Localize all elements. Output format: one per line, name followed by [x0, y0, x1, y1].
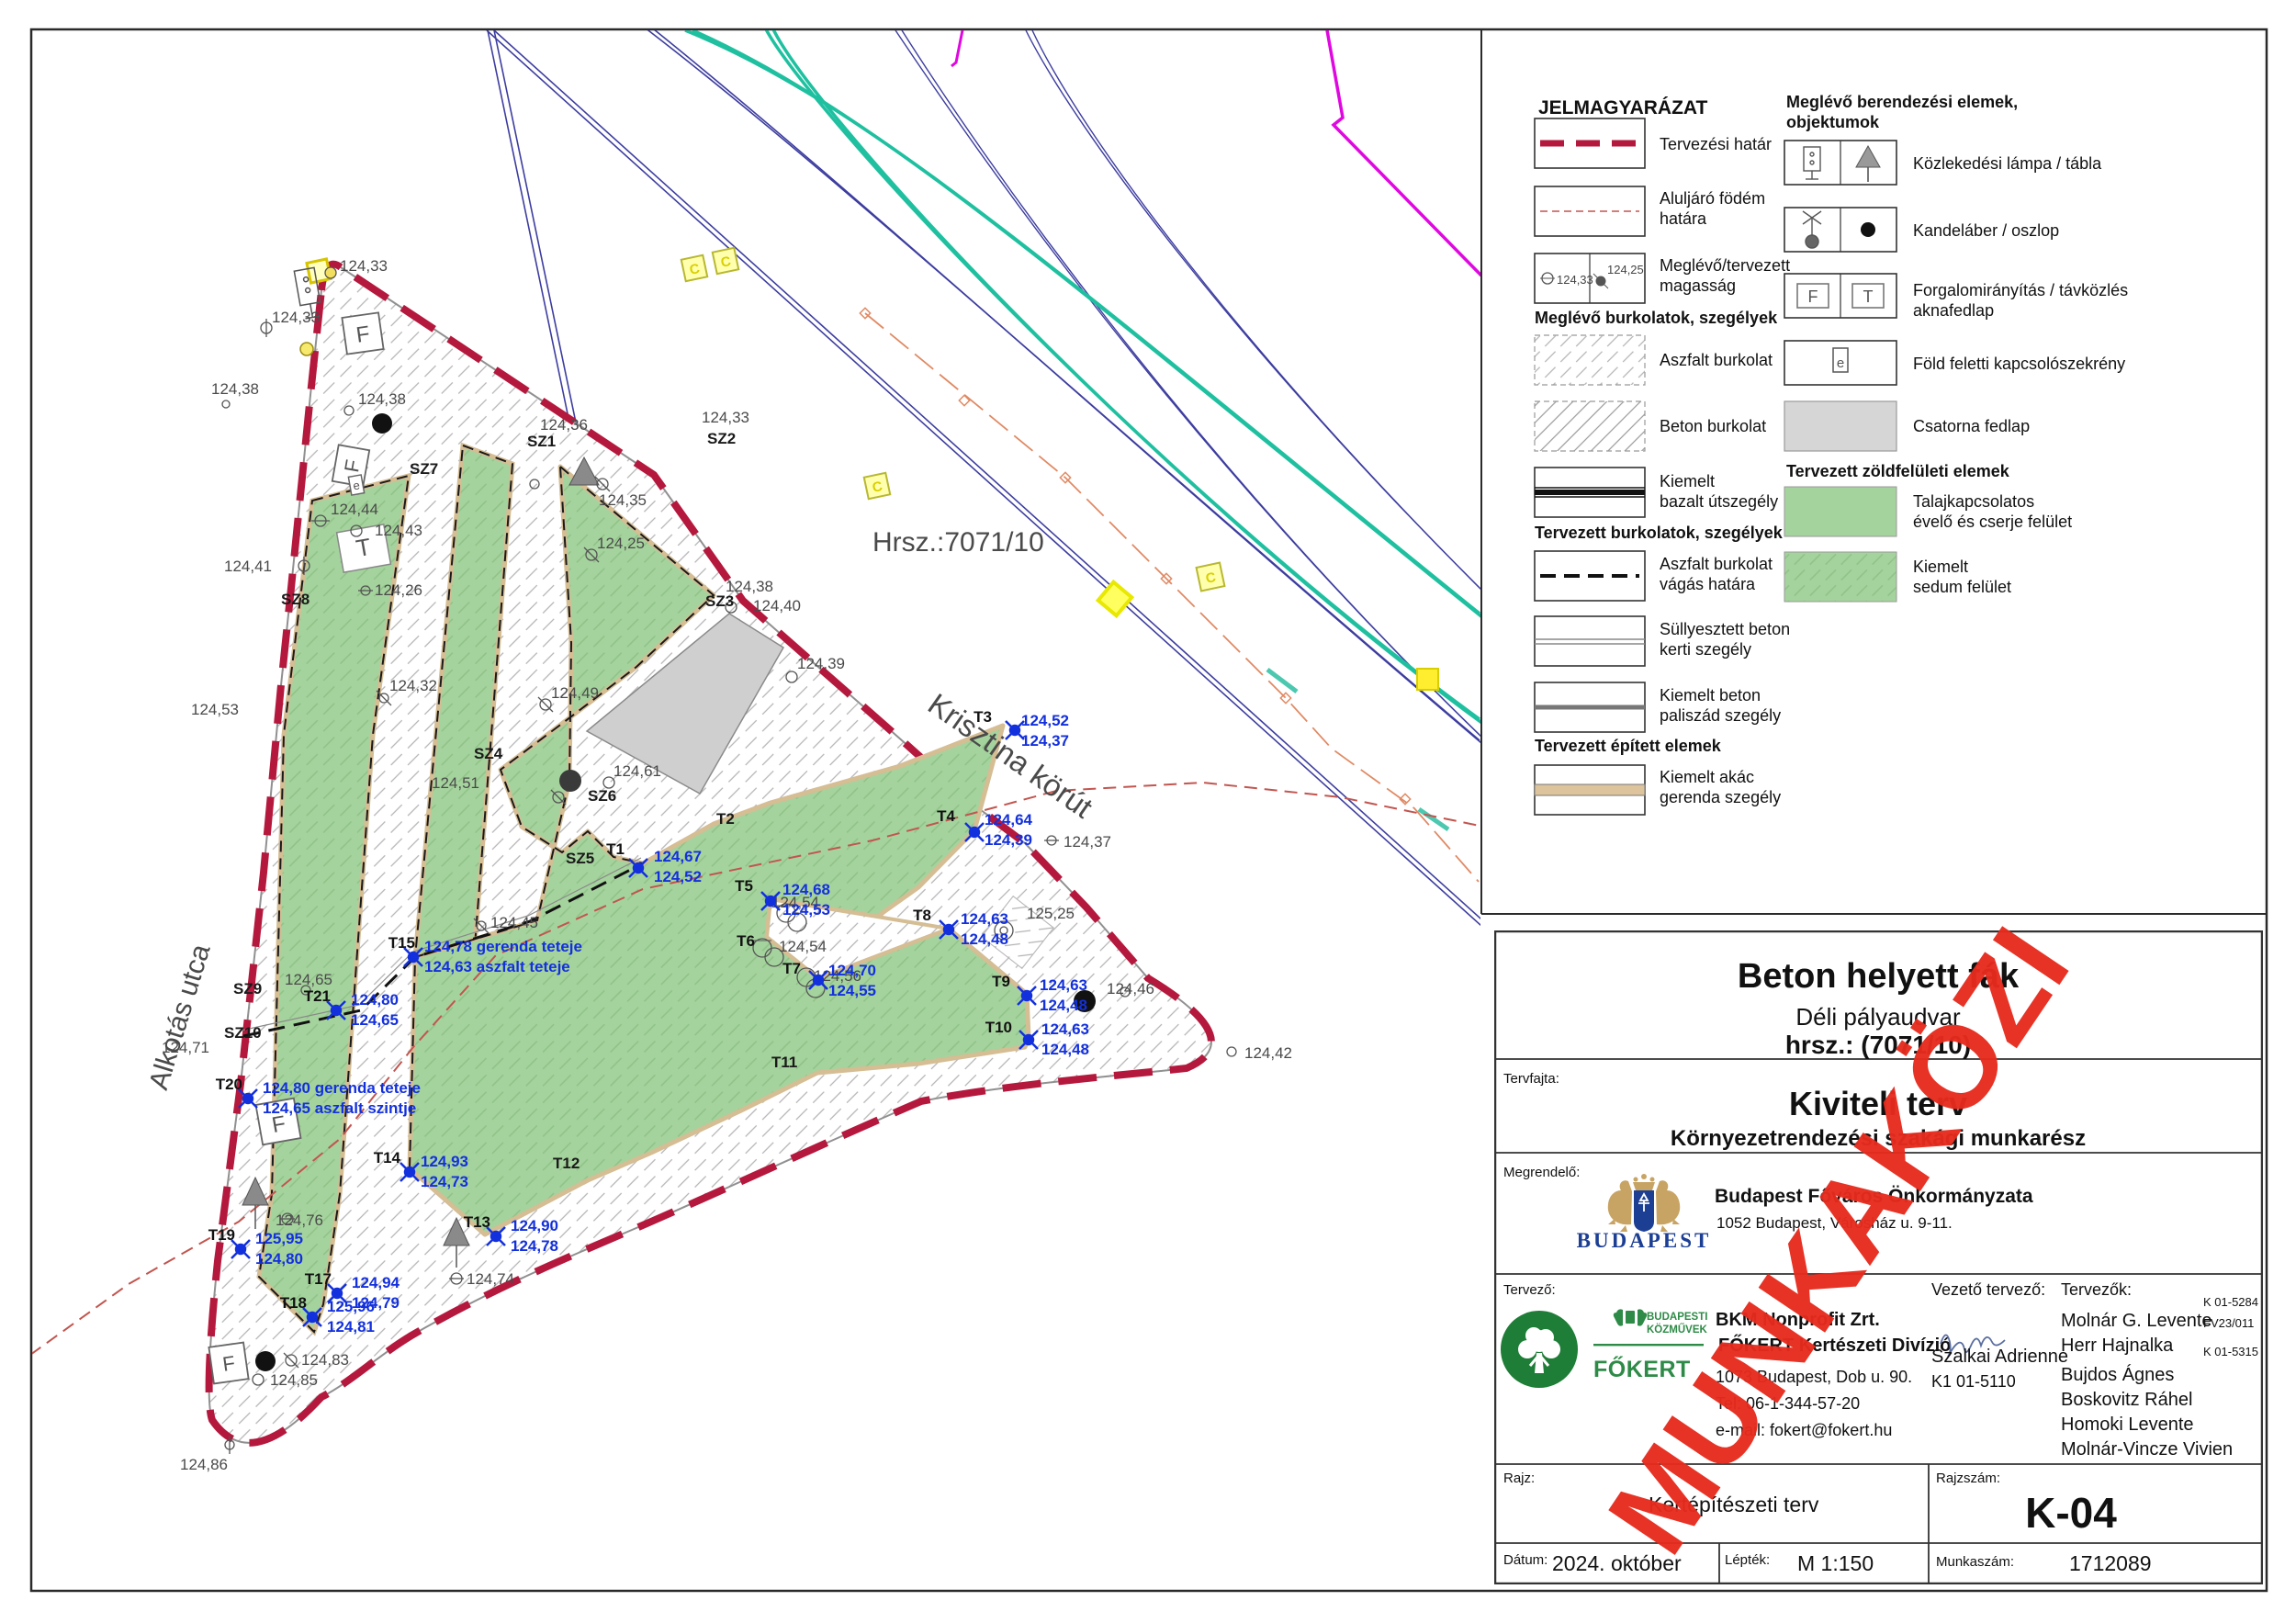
svg-text:125,25: 125,25: [1027, 905, 1075, 922]
svg-text:gerenda szegély: gerenda szegély: [1660, 788, 1781, 806]
svg-text:124,46: 124,46: [1107, 980, 1154, 997]
svg-text:Dátum:: Dátum:: [1503, 1552, 1548, 1568]
svg-text:124,33: 124,33: [272, 309, 320, 326]
svg-text:124,63: 124,63: [1040, 976, 1087, 994]
svg-text:124,35: 124,35: [599, 491, 647, 509]
svg-text:Aszfalt burkolat: Aszfalt burkolat: [1660, 555, 1773, 573]
svg-text:Aszfalt burkolat: Aszfalt burkolat: [1660, 351, 1773, 369]
svg-text:K 01-5284: K 01-5284: [2203, 1295, 2258, 1309]
svg-text:Lépték:: Lépték:: [1725, 1552, 1770, 1568]
svg-text:Meglévő burkolatok, szegélyek: Meglévő burkolatok, szegélyek: [1535, 309, 1778, 327]
svg-text:SZ3: SZ3: [705, 592, 734, 610]
svg-text:124,43: 124,43: [375, 522, 422, 539]
svg-text:124,85: 124,85: [270, 1371, 318, 1389]
svg-text:Bujdos Ágnes: Bujdos Ágnes: [2061, 1364, 2174, 1385]
svg-text:T14: T14: [374, 1149, 401, 1167]
svg-text:SZ8: SZ8: [281, 591, 310, 608]
svg-text:1073 Budapest, Dob u. 90.: 1073 Budapest, Dob u. 90.: [1716, 1368, 1912, 1386]
svg-text:BKM Nonprofit Zrt.: BKM Nonprofit Zrt.: [1716, 1310, 1880, 1330]
svg-text:SZ5: SZ5: [566, 850, 594, 867]
svg-text:Homoki Levente: Homoki Levente: [2061, 1414, 2194, 1435]
svg-text:K 01-5315: K 01-5315: [2203, 1345, 2258, 1358]
svg-text:124,67: 124,67: [654, 848, 702, 865]
svg-text:FŐKERT: FŐKERT: [1593, 1356, 1691, 1382]
svg-text:Kiemelt: Kiemelt: [1913, 558, 1968, 576]
svg-text:124,25: 124,25: [1607, 263, 1644, 276]
svg-text:124,52: 124,52: [1021, 712, 1069, 729]
svg-text:T8: T8: [913, 907, 931, 924]
svg-text:124,48: 124,48: [1041, 1041, 1089, 1058]
svg-text:T11: T11: [771, 1054, 797, 1071]
svg-text:Föld feletti kapcsolószekrény: Föld feletti kapcsolószekrény: [1913, 355, 2125, 373]
svg-text:Megrendelő:: Megrendelő:: [1503, 1165, 1580, 1180]
svg-text:T9: T9: [992, 973, 1010, 990]
svg-text:124,33: 124,33: [1557, 273, 1593, 287]
svg-text:határa: határa: [1660, 209, 1707, 228]
svg-text:Kertépítészeti terv: Kertépítészeti terv: [1649, 1493, 1819, 1516]
svg-text:124,38: 124,38: [211, 380, 259, 398]
svg-text:124,25: 124,25: [597, 535, 645, 552]
svg-text:125,96: 125,96: [327, 1298, 375, 1315]
svg-text:Környezetrendezési szakági mun: Környezetrendezési szakági munkarész: [1671, 1126, 2086, 1151]
svg-text:SZ9: SZ9: [233, 980, 262, 997]
svg-text:Tel: 06-1-344-57-20: Tel: 06-1-344-57-20: [1716, 1394, 1860, 1413]
svg-text:124,80 gerenda teteje: 124,80 gerenda teteje: [263, 1079, 421, 1097]
svg-text:Déli pályaudvar: Déli pályaudvar: [1795, 1003, 1961, 1031]
svg-text:124,65: 124,65: [351, 1011, 399, 1029]
svg-text:Meglévő/tervezett: Meglévő/tervezett: [1660, 256, 1790, 275]
svg-text:124,41: 124,41: [224, 558, 272, 575]
svg-text:objektumok: objektumok: [1786, 113, 1880, 131]
svg-text:T15: T15: [388, 934, 415, 952]
svg-text:e: e: [1837, 355, 1844, 371]
svg-text:124,76: 124,76: [276, 1212, 323, 1229]
svg-text:124,65 aszfalt szintje: 124,65 aszfalt szintje: [263, 1099, 416, 1117]
svg-text:124,94: 124,94: [352, 1274, 400, 1291]
svg-text:FŐKERT Kertészeti Divízió: FŐKERT Kertészeti Divízió: [1718, 1335, 1951, 1356]
svg-text:124,48: 124,48: [1040, 997, 1087, 1014]
svg-text:e-mail: fokert@fokert.hu: e-mail: fokert@fokert.hu: [1716, 1421, 1892, 1439]
svg-text:124,86: 124,86: [180, 1456, 228, 1473]
svg-text:Csatorna fedlap: Csatorna fedlap: [1913, 417, 2030, 435]
svg-text:2024. október: 2024. október: [1552, 1551, 1682, 1575]
svg-text:Közlekedési lámpa / tábla: Közlekedési lámpa / tábla: [1913, 154, 2102, 173]
svg-text:F: F: [1808, 287, 1818, 306]
svg-text:Budapest Főváros Önkormányzata: Budapest Főváros Önkormányzata: [1715, 1186, 2033, 1207]
svg-text:FV23/011: FV23/011: [2203, 1316, 2254, 1330]
svg-text:bazalt útszegély: bazalt útszegély: [1660, 492, 1778, 511]
svg-text:124,36: 124,36: [540, 416, 588, 434]
svg-text:124,26: 124,26: [375, 581, 422, 599]
svg-text:Kandeláber / oszlop: Kandeláber / oszlop: [1913, 221, 2059, 240]
svg-text:Rajz:: Rajz:: [1503, 1471, 1535, 1486]
svg-text:124,40: 124,40: [753, 597, 801, 614]
svg-text:aknafedlap: aknafedlap: [1913, 301, 1994, 320]
svg-text:1052 Budapest, Városház u. 9-1: 1052 Budapest, Városház u. 9-11.: [1716, 1214, 1953, 1232]
svg-text:T12: T12: [553, 1155, 580, 1172]
svg-text:SZ2: SZ2: [707, 430, 736, 447]
svg-text:Beton helyett fák: Beton helyett fák: [1738, 957, 2020, 996]
svg-text:Tervező:: Tervező:: [1503, 1282, 1556, 1298]
svg-text:T6: T6: [737, 932, 755, 950]
svg-text:124,45: 124,45: [490, 914, 538, 931]
svg-text:Aluljáró födém: Aluljáró födém: [1660, 189, 1765, 208]
svg-text:KÖZMŰVEK: KÖZMŰVEK: [1647, 1324, 1708, 1336]
svg-text:124,63: 124,63: [1041, 1020, 1089, 1038]
svg-text:124,93: 124,93: [421, 1153, 468, 1170]
svg-text:K-04: K-04: [2025, 1489, 2117, 1537]
svg-text:Rajzszám:: Rajzszám:: [1936, 1471, 2000, 1486]
svg-text:Munkaszám:: Munkaszám:: [1936, 1554, 2014, 1570]
svg-text:T5: T5: [735, 877, 753, 895]
svg-text:BUDAPESTI: BUDAPESTI: [1647, 1312, 1707, 1323]
svg-text:Beton burkolat: Beton burkolat: [1660, 417, 1766, 435]
svg-text:Tervezők:: Tervezők:: [2061, 1280, 2132, 1299]
svg-text:Vezető tervező:: Vezető tervező:: [1931, 1280, 2045, 1299]
svg-text:Tervezett zöldfelületi elemek: Tervezett zöldfelületi elemek: [1786, 462, 2010, 480]
svg-text:T2: T2: [716, 810, 735, 828]
svg-text:124,52: 124,52: [654, 868, 702, 885]
svg-text:124,53: 124,53: [782, 901, 830, 919]
svg-text:124,44: 124,44: [331, 501, 378, 518]
svg-text:Tervezési határ: Tervezési határ: [1660, 135, 1772, 153]
svg-text:hrsz.: (7071/10): hrsz.: (7071/10): [1785, 1031, 1971, 1059]
svg-text:T7: T7: [782, 960, 801, 977]
svg-text:124,63: 124,63: [961, 910, 1008, 928]
svg-text:124,78: 124,78: [511, 1237, 558, 1255]
svg-text:124,64: 124,64: [985, 811, 1033, 828]
svg-text:Molnár-Vincze Vivien: Molnár-Vincze Vivien: [2061, 1439, 2233, 1460]
svg-text:124,74: 124,74: [467, 1270, 514, 1288]
svg-text:Tervezett épített elemek: Tervezett épített elemek: [1535, 737, 1722, 755]
svg-text:125,95: 125,95: [255, 1230, 303, 1247]
svg-text:124,39: 124,39: [985, 831, 1032, 849]
svg-text:124,90: 124,90: [511, 1217, 558, 1234]
svg-text:Boskovitz Ráhel: Boskovitz Ráhel: [2061, 1390, 2192, 1410]
svg-text:124,78 gerenda teteje: 124,78 gerenda teteje: [424, 938, 582, 955]
svg-text:T1: T1: [606, 840, 625, 858]
svg-text:T4: T4: [937, 807, 955, 825]
svg-text:124,49: 124,49: [551, 684, 599, 702]
svg-text:Meglévő berendezési elemek,: Meglévő berendezési elemek,: [1786, 93, 2018, 111]
svg-text:124,32: 124,32: [389, 677, 437, 694]
svg-text:vágás határa: vágás határa: [1660, 575, 1756, 593]
svg-text:124,65: 124,65: [285, 971, 332, 988]
svg-text:124,39: 124,39: [797, 655, 845, 672]
svg-text:124,42: 124,42: [1244, 1044, 1292, 1062]
svg-text:évelő és cserje felület: évelő és cserje felület: [1913, 513, 2072, 531]
svg-text:124,33: 124,33: [340, 257, 388, 275]
svg-text:Kiviteli terv: Kiviteli terv: [1789, 1085, 1967, 1122]
svg-text:124,63 aszfalt teteje: 124,63 aszfalt teteje: [424, 958, 570, 975]
svg-text:124,83: 124,83: [301, 1351, 349, 1369]
svg-text:1712089: 1712089: [2069, 1551, 2152, 1575]
svg-text:magasság: magasság: [1660, 276, 1736, 295]
svg-text:K1 01-5110: K1 01-5110: [1931, 1372, 2016, 1391]
svg-text:SZ1: SZ1: [527, 433, 556, 450]
svg-text:124,61: 124,61: [613, 762, 661, 780]
svg-text:124,80: 124,80: [351, 991, 399, 1009]
svg-text:124,68: 124,68: [782, 881, 830, 898]
svg-text:paliszád szegély: paliszád szegély: [1660, 706, 1781, 725]
svg-text:Szalkai Adrienne: Szalkai Adrienne: [1931, 1347, 2068, 1367]
svg-text:124,73: 124,73: [421, 1173, 468, 1190]
svg-text:124,70: 124,70: [828, 962, 876, 979]
svg-text:124,80: 124,80: [255, 1250, 303, 1268]
svg-text:Talajkapcsolatos: Talajkapcsolatos: [1913, 492, 2034, 511]
svg-text:Hrsz.:7071/10: Hrsz.:7071/10: [872, 527, 1044, 558]
svg-text:sedum felület: sedum felület: [1913, 578, 2011, 596]
svg-text:124,51: 124,51: [432, 774, 479, 792]
svg-text:Süllyesztett beton: Süllyesztett beton: [1660, 620, 1790, 638]
svg-text:T: T: [1863, 287, 1874, 306]
svg-text:M 1:150: M 1:150: [1797, 1551, 1874, 1575]
svg-text:124,55: 124,55: [828, 982, 876, 999]
svg-text:Kiemelt beton: Kiemelt beton: [1660, 686, 1761, 704]
svg-text:Herr Hajnalka: Herr Hajnalka: [2061, 1336, 2174, 1356]
svg-text:SZ4: SZ4: [474, 745, 503, 762]
svg-text:124,33: 124,33: [702, 409, 749, 426]
svg-text:124,53: 124,53: [191, 701, 239, 718]
svg-text:Tervezett burkolatok, szegélye: Tervezett burkolatok, szegélyek: [1535, 524, 1784, 542]
svg-text:Tervfajta:: Tervfajta:: [1503, 1071, 1559, 1087]
svg-text:124,48: 124,48: [961, 930, 1008, 948]
svg-text:124,37: 124,37: [1064, 833, 1111, 851]
svg-text:Alkotás utca: Alkotás utca: [143, 941, 216, 1093]
svg-text:BUDAPEST: BUDAPEST: [1577, 1229, 1712, 1252]
svg-text:124,54: 124,54: [779, 938, 827, 955]
svg-text:Molnár G. Levente: Molnár G. Levente: [2061, 1311, 2212, 1331]
svg-text:SZ10: SZ10: [224, 1024, 262, 1042]
svg-text:Kiemelt akác: Kiemelt akác: [1660, 768, 1754, 786]
svg-text:T10: T10: [985, 1019, 1012, 1036]
svg-text:124,81: 124,81: [327, 1318, 375, 1336]
svg-text:kerti szegély: kerti szegély: [1660, 640, 1751, 659]
svg-text:Forgalomirányítás / távközlés: Forgalomirányítás / távközlés: [1913, 281, 2128, 299]
svg-text:124,38: 124,38: [358, 390, 406, 408]
svg-text:SZ7: SZ7: [410, 460, 438, 478]
svg-text:Kiemelt: Kiemelt: [1660, 472, 1715, 490]
svg-text:JELMAGYARÁZAT: JELMAGYARÁZAT: [1538, 97, 1708, 118]
svg-text:SZ6: SZ6: [588, 787, 616, 805]
